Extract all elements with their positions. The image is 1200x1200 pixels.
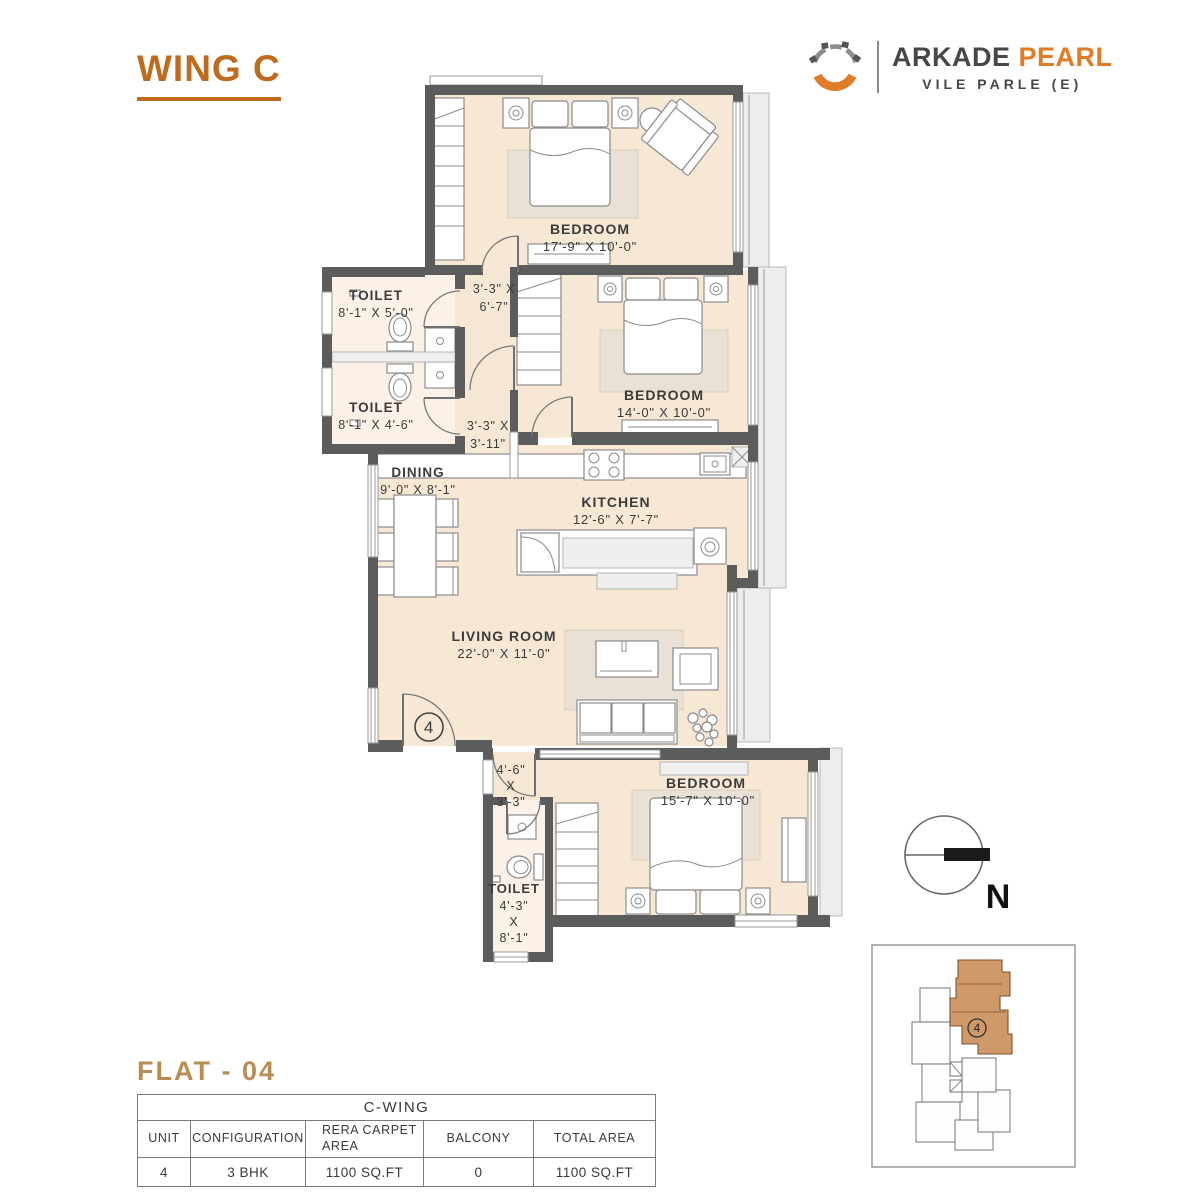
toilet2-label: TOILET bbox=[349, 400, 403, 415]
keyplan-unit-number: 4 bbox=[974, 1021, 981, 1035]
toilet1-label: TOILET bbox=[349, 288, 403, 303]
passage-top-dims-2: 6'-7" bbox=[480, 300, 509, 314]
page: WING C ARKADEPEARL VILE PARLE (E) bbox=[0, 0, 1200, 1200]
col-header-rera-carpet-area: RERA CARPET AREA bbox=[306, 1121, 424, 1158]
passage-top-dims-1: 3'-3" X bbox=[473, 282, 515, 296]
kitchen-label: KITCHEN bbox=[581, 494, 650, 510]
value-balcony: 0 bbox=[424, 1158, 534, 1187]
value-unit: 4 bbox=[138, 1158, 191, 1187]
toilet2-dims: 8'-1" X 4'-6" bbox=[338, 418, 413, 432]
passage-mid-dims-1: 3'-3" X bbox=[467, 419, 509, 433]
entrance-unit-number: 4 bbox=[424, 718, 434, 737]
bedroom2-dims: 14'-0" X 10'-0" bbox=[617, 405, 711, 420]
bedroom2-label: BEDROOM bbox=[624, 387, 704, 403]
value-configuration: 3 BHK bbox=[191, 1158, 306, 1187]
bedroom1-dims: 17'-9" X 10'-0" bbox=[543, 239, 637, 254]
passage-bottom-dims-2: X bbox=[506, 779, 515, 793]
passage-bottom-dims-1: 4'-6" bbox=[497, 763, 526, 777]
value-total-area: 1100 SQ.FT bbox=[534, 1158, 656, 1187]
dining-dims: 9'-0" X 8'-1" bbox=[380, 483, 455, 497]
bedroom3-dims: 15'-7" X 10'-0" bbox=[661, 793, 755, 808]
toilet1-dims: 8'-1" X 5'-0" bbox=[338, 306, 413, 320]
compass: N bbox=[905, 816, 1010, 916]
kitchen-dims: 12'-6" X 7'-7" bbox=[573, 512, 659, 527]
bedroom1-label: BEDROOM bbox=[550, 221, 630, 237]
living-furniture bbox=[565, 630, 718, 746]
floor-plan: 4 BEDROOM 17'-9" X 10'-0" TOILET 8'-1" X… bbox=[0, 0, 1200, 1200]
living-dims: 22'-0" X 11'-0" bbox=[457, 646, 550, 661]
compass-north-label: N bbox=[986, 878, 1011, 916]
dining-furniture bbox=[372, 495, 458, 597]
dining-label: DINING bbox=[391, 465, 444, 480]
toilet3-dims-3: 8'-1" bbox=[500, 931, 529, 945]
passage-bottom-dims-3: 3'-3" bbox=[497, 795, 526, 809]
bedroom3-label: BEDROOM bbox=[666, 775, 746, 791]
toilet3-dims-2: X bbox=[509, 915, 518, 929]
toilet3-dims-1: 4'-3" bbox=[500, 899, 529, 913]
table-wing-header: C-WING bbox=[138, 1095, 656, 1121]
col-header-total-area: TOTAL AREA bbox=[534, 1121, 656, 1158]
living-label: LIVING ROOM bbox=[451, 628, 556, 644]
flat-title: FLAT - 04 bbox=[137, 1056, 276, 1087]
toilet3-label: TOILET bbox=[488, 881, 540, 896]
key-plan: 4 bbox=[872, 945, 1075, 1167]
col-header-balcony: BALCONY bbox=[424, 1121, 534, 1158]
col-header-configuration: CONFIGURATION bbox=[191, 1121, 306, 1158]
area-table: C-WING UNIT CONFIGURATION RERA CARPET AR… bbox=[137, 1094, 656, 1187]
passage-mid-dims-2: 3'-11" bbox=[470, 437, 506, 451]
col-header-unit: UNIT bbox=[138, 1121, 191, 1158]
value-rera-carpet-area: 1100 SQ.FT bbox=[306, 1158, 424, 1187]
